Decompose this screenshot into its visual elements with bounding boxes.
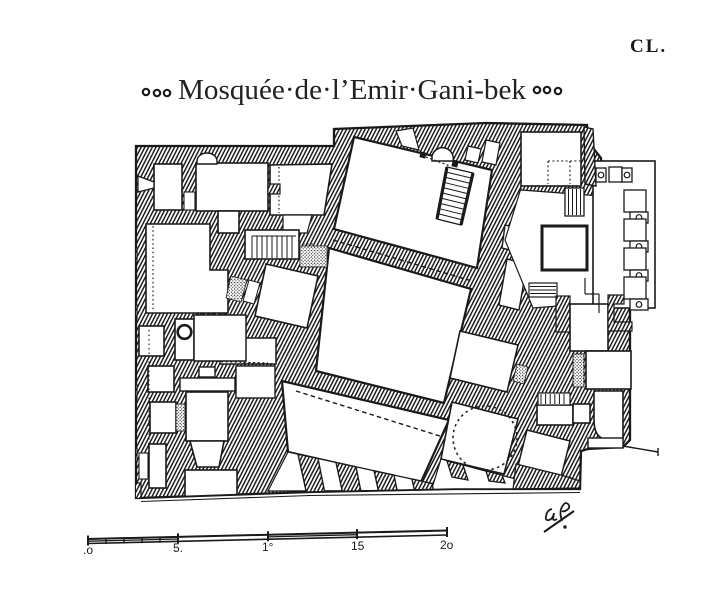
svg-text:1°: 1° xyxy=(262,540,274,554)
svg-text:15: 15 xyxy=(351,539,365,553)
svg-text:CL.: CL. xyxy=(630,36,667,57)
svg-text:5.: 5. xyxy=(173,541,183,555)
svg-text:2o: 2o xyxy=(440,538,454,552)
svg-text:.o: .o xyxy=(83,543,93,557)
svg-text:Mosquée·de·l’Emir·Gani-bek: Mosquée·de·l’Emir·Gani-bek xyxy=(178,75,526,106)
